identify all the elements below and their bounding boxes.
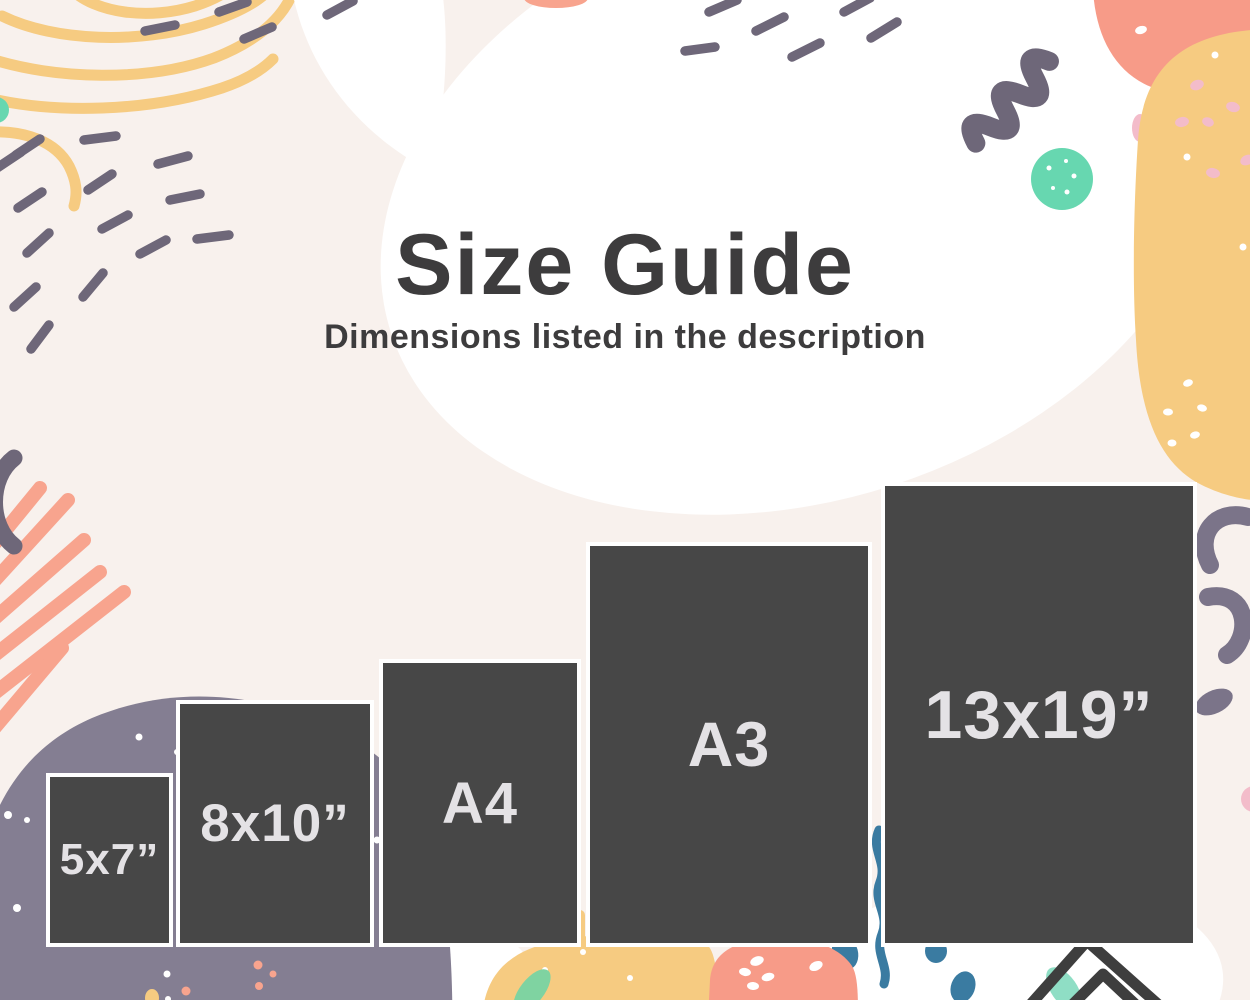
coral-stripes bbox=[0, 488, 124, 738]
size-card-5x7: 5x7” bbox=[46, 773, 173, 947]
size-label-13x19: 13x19” bbox=[924, 676, 1153, 754]
purple-shapes-right bbox=[1191, 515, 1248, 721]
header: Size Guide Dimensions listed in the desc… bbox=[0, 222, 1250, 357]
white-leaf-shape bbox=[292, 0, 446, 172]
size-label-8x10: 8x10” bbox=[200, 793, 349, 854]
size-card-a4: A4 bbox=[379, 659, 581, 947]
page-subtitle: Dimensions listed in the description bbox=[0, 318, 1250, 357]
size-card-a3: A3 bbox=[586, 542, 872, 947]
size-label-a3: A3 bbox=[688, 709, 771, 781]
size-card-13x19: 13x19” bbox=[881, 482, 1197, 947]
size-card-8x10: 8x10” bbox=[176, 700, 374, 947]
size-guide-poster: Size Guide Dimensions listed in the desc… bbox=[0, 0, 1250, 1000]
purple-hook-left bbox=[0, 458, 14, 546]
teal-dotted-circle bbox=[1031, 148, 1093, 210]
size-label-5x7: 5x7” bbox=[60, 835, 159, 885]
size-label-a4: A4 bbox=[442, 770, 518, 837]
pink-edge-dot bbox=[1241, 786, 1250, 812]
page-title: Size Guide bbox=[0, 222, 1250, 308]
